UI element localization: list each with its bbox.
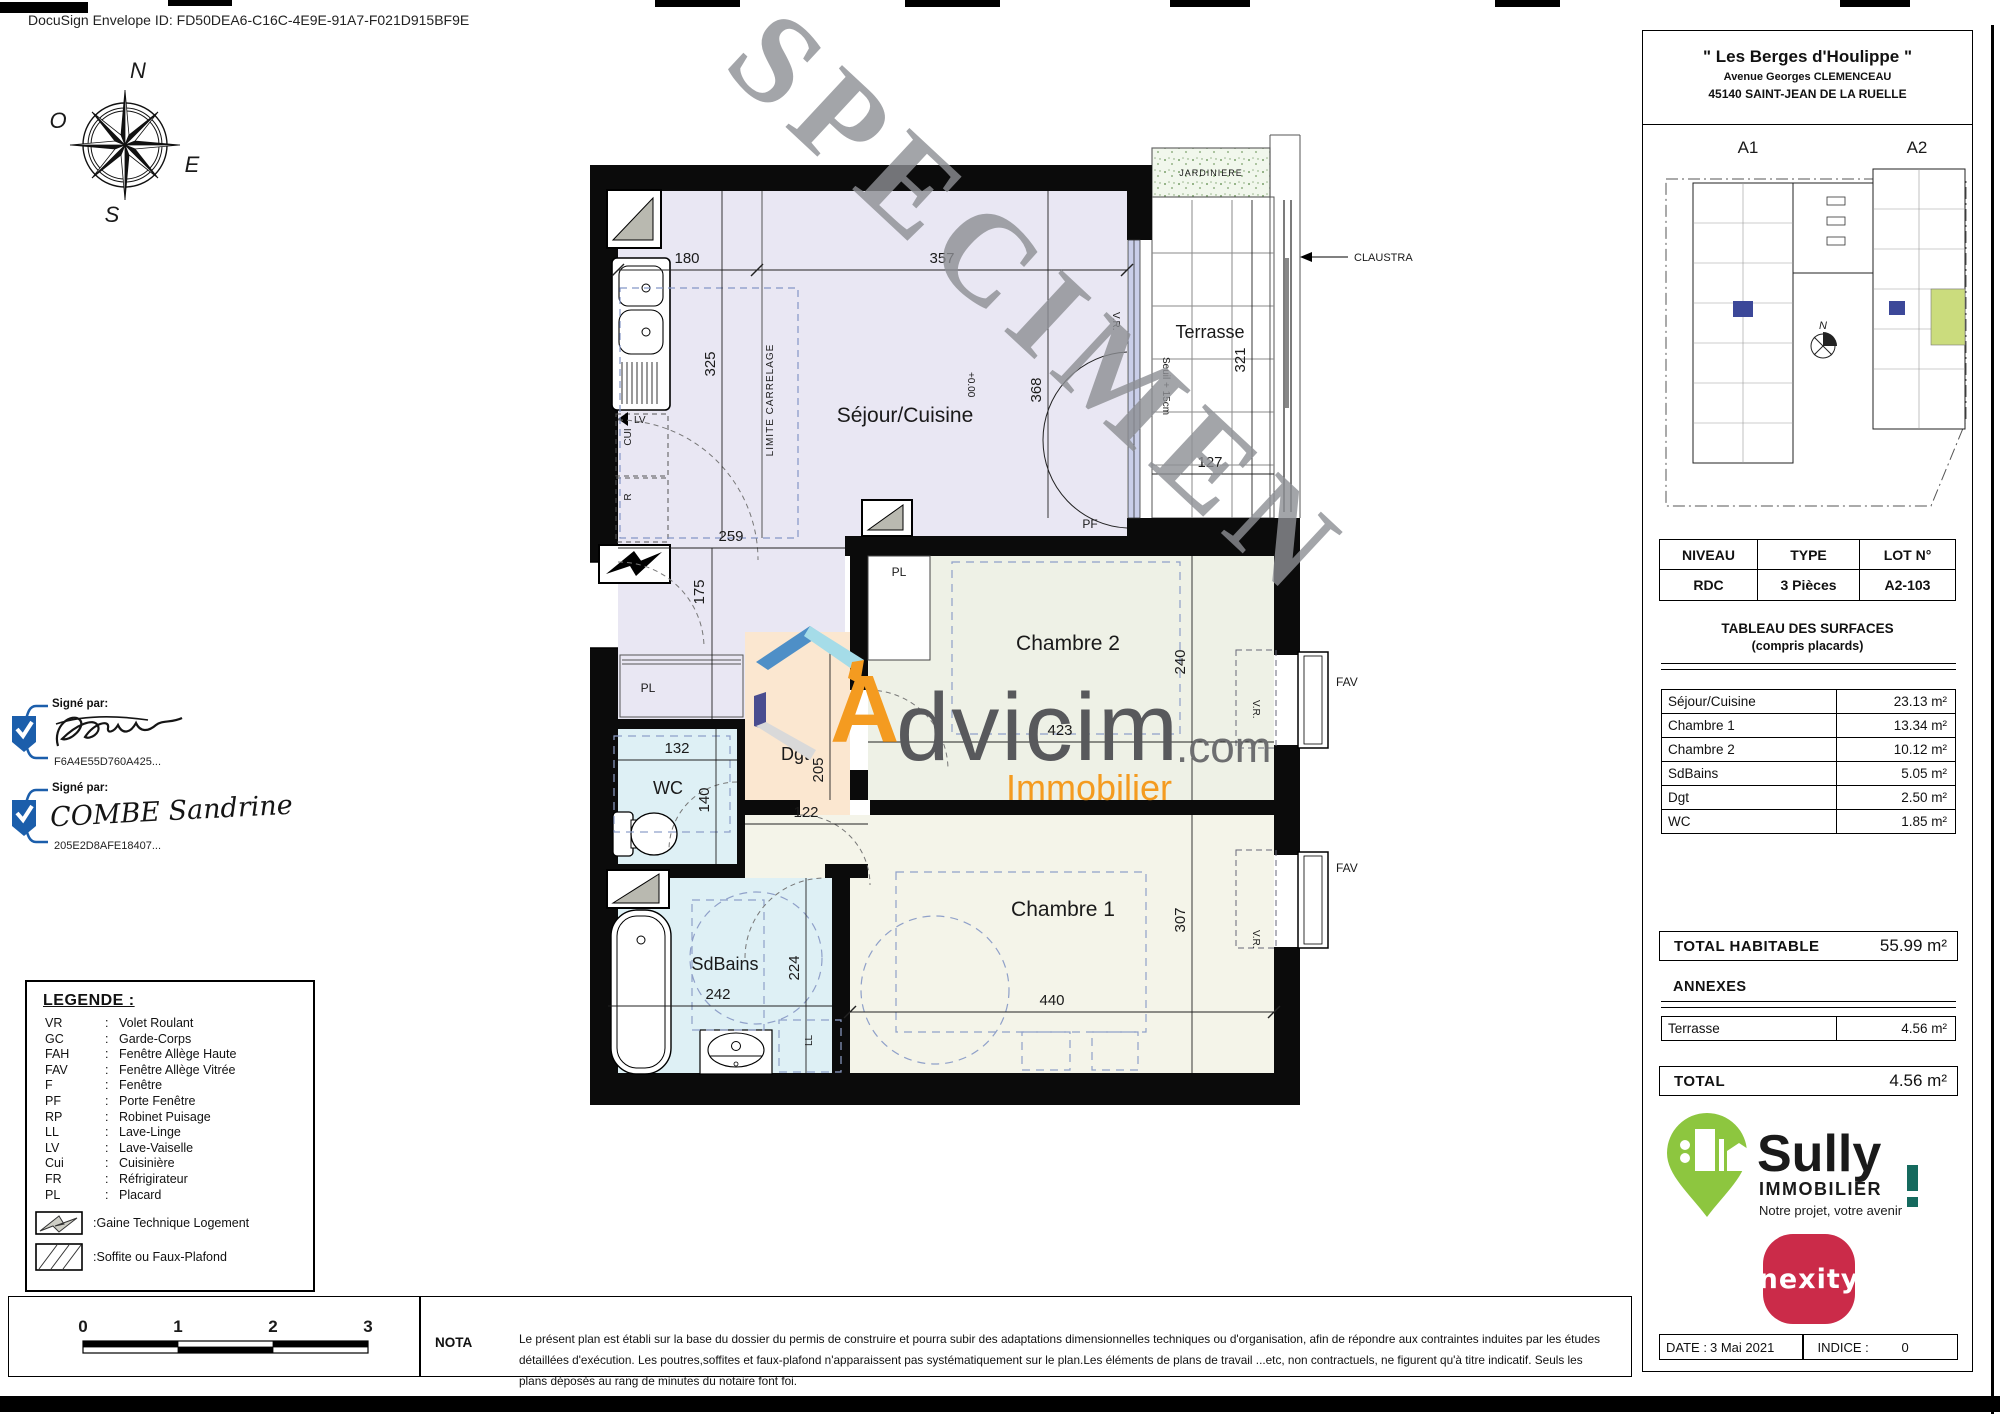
svg-text:PF: PF <box>1082 517 1097 531</box>
surface-row: Dgt2.50 m² <box>1662 786 1955 810</box>
legend-item: RP:Robinet Puisage <box>27 1110 313 1126</box>
svg-text:Seuil + 15cm: Seuil + 15cm <box>1160 357 1171 415</box>
svg-text:357: 357 <box>929 250 954 267</box>
total-habitable-box: TOTAL HABITABLE55.99 m² <box>1659 931 1958 961</box>
sully-name: Sully <box>1757 1125 1881 1183</box>
gtl-icon <box>35 1211 83 1235</box>
surfaces-subtitle: (compris placards) <box>1643 639 1972 653</box>
svg-text:325: 325 <box>702 351 719 376</box>
svg-text:FAV: FAV <box>1336 861 1358 875</box>
svg-text:368: 368 <box>1028 377 1045 402</box>
surfaces-title: TABLEAU DES SURFACES <box>1643 621 1972 636</box>
legend-item: GC:Garde-Corps <box>27 1032 313 1048</box>
legend-item: FAV:Fenêtre Allège Vitrée <box>27 1063 313 1079</box>
page-bottom-bar <box>0 1396 2000 1412</box>
surface-row: Chambre 210.12 m² <box>1662 738 1955 762</box>
surface-row: WC1.85 m² <box>1662 810 1955 833</box>
advicim-name: dvicim <box>896 680 1180 776</box>
svg-text:V.R.: V.R. <box>1250 930 1261 949</box>
kitchen-sink-unit <box>612 258 670 410</box>
svg-text:PL: PL <box>892 565 907 579</box>
signature-id: F6A4E55D760A425... <box>54 756 161 768</box>
legend-item: FR:Réfrigirateur <box>27 1172 313 1188</box>
signature-id: 205E2D8AFE18407... <box>54 840 161 852</box>
svg-text:+0.00: +0.00 <box>965 372 976 398</box>
signature-scribble <box>50 710 200 756</box>
claustra: CLAUSTRA <box>1284 200 1413 512</box>
label-wc: WC <box>653 778 683 798</box>
date-indice-row: DATE : 3 Mai 2021 INDICE : 0 <box>1659 1334 1958 1360</box>
bathtub-icon <box>611 910 671 1074</box>
svg-text:321: 321 <box>1232 347 1249 372</box>
legend-item: Cui:Cuisinière <box>27 1156 313 1172</box>
svg-text:3: 3 <box>363 1317 372 1336</box>
soffite-icon <box>35 1243 83 1271</box>
label-terrasse: Terrasse <box>1175 322 1244 342</box>
claustra-label: CLAUSTRA <box>1354 252 1413 264</box>
svg-text:1: 1 <box>173 1317 182 1336</box>
signature-block-2: Signé par: COMBE Sandrine 205E2D8AFE1840… <box>10 782 240 872</box>
legend-item: F:Fenêtre <box>27 1078 313 1094</box>
level-type-lot-table: NIVEAUTYPELOT N° RDC3 PiècesA2-103 <box>1659 539 1956 601</box>
svg-text:FAV: FAV <box>1336 675 1358 689</box>
surfaces-table: Séjour/Cuisine23.13 m² Chambre 113.34 m²… <box>1661 689 1956 834</box>
site-compass-icon: N <box>1811 320 1837 358</box>
legend-item: LL:Lave-Linge <box>27 1125 313 1141</box>
svg-text:140: 140 <box>696 787 713 812</box>
total-box: TOTAL4.56 m² <box>1659 1066 1958 1096</box>
jardiniere-label: JARDINIERE <box>1179 168 1243 178</box>
surface-row: Chambre 113.34 m² <box>1662 714 1955 738</box>
signature-block-1: Signé par: F6A4E55D760A425... <box>10 698 240 788</box>
svg-text:132: 132 <box>664 740 689 757</box>
signed-by-label: Signé par: <box>52 782 108 794</box>
double-rule <box>1661 663 1956 670</box>
legend-item: PF:Porte Fenêtre <box>27 1094 313 1110</box>
scale-bar: 0 1 2 3 <box>78 1317 372 1353</box>
annexes-label: ANNEXES <box>1673 979 1747 995</box>
advicim-initial: A <box>830 662 899 758</box>
svg-text:LV: LV <box>634 415 646 426</box>
label-sejour: Séjour/Cuisine <box>837 404 974 427</box>
site-key-plan: A1 A2 N <box>1643 131 1974 526</box>
page-right-edge <box>1991 25 1994 1414</box>
svg-text:CUI: CUI <box>623 428 634 445</box>
surface-row: Séjour/Cuisine23.13 m² <box>1662 690 1955 714</box>
compass-e: E <box>185 152 200 177</box>
legend-gtl-row: :Gaine Technique Logement <box>27 1211 313 1235</box>
svg-text:440: 440 <box>1039 992 1064 1009</box>
legend-item: FAH:Fenêtre Allège Haute <box>27 1047 313 1063</box>
svg-text:R: R <box>623 493 634 500</box>
legend-title: LEGENDE : <box>43 992 313 1010</box>
compass-s: S <box>105 202 120 227</box>
compass-o: O <box>49 108 66 133</box>
label-chambre1: Chambre 1 <box>1011 898 1115 921</box>
closet-entry <box>620 655 743 717</box>
svg-text:259: 259 <box>718 528 743 545</box>
svg-text:PL: PL <box>641 681 656 695</box>
svg-text:LIMITE CARRELAGE: LIMITE CARRELAGE <box>765 344 776 457</box>
signed-by-label: Signé par: <box>52 698 108 710</box>
svg-text:180: 180 <box>674 250 699 267</box>
advicim-tagline: Immobilier <box>1006 770 1172 806</box>
svg-text:V.R.: V.R. <box>1110 312 1121 331</box>
svg-text:242: 242 <box>705 986 730 1003</box>
site-a1-label: A1 <box>1738 138 1759 157</box>
compass-n: N <box>130 58 146 83</box>
sully-sub: IMMOBILIER <box>1759 1179 1882 1199</box>
title-block-panel: " Les Berges d'Houlippe " Avenue Georges… <box>1642 30 1973 1372</box>
svg-text:224: 224 <box>786 955 803 980</box>
project-address-1: Avenue Georges CLEMENCEAU <box>1643 71 1972 83</box>
annexe-row: Terrasse4.56 m² <box>1662 1017 1955 1040</box>
annexes-table: Terrasse4.56 m² <box>1661 1016 1956 1041</box>
svg-text:307: 307 <box>1172 907 1189 932</box>
project-address-2: 45140 SAINT-JEAN DE LA RUELLE <box>1643 87 1972 101</box>
sully-tagline: Notre projet, votre avenir <box>1759 1203 1903 1218</box>
floor-plan-sheet: N O E S JARDINIERE <box>0 0 2000 1414</box>
docusign-envelope-id: DocuSign Envelope ID: FD50DEA6-C16C-4E9E… <box>28 12 469 28</box>
surface-row: SdBains5.05 m² <box>1662 762 1955 786</box>
legend-soffite-row: :Soffite ou Faux-Plafond <box>27 1243 313 1271</box>
advicim-tld: .com <box>1176 726 1271 770</box>
washbasin-icon <box>700 1030 772 1074</box>
legend-item: VR:Volet Roulant <box>27 1016 313 1032</box>
svg-text:0: 0 <box>78 1317 87 1336</box>
legend-box: LEGENDE : VR:Volet Roulant GC:Garde-Corp… <box>25 980 315 1292</box>
svg-text:127: 127 <box>1197 454 1222 471</box>
site-highlighted-unit <box>1931 289 1965 345</box>
toilet-icon <box>613 812 677 856</box>
legend-item: PL:Placard <box>27 1188 313 1204</box>
svg-text:2: 2 <box>268 1317 277 1336</box>
svg-text:LL: LL <box>804 1034 815 1046</box>
double-rule <box>1661 1001 1956 1008</box>
site-a2-label: A2 <box>1907 138 1928 157</box>
sully-logo: Sully IMMOBILIER Notre projet, votre ave… <box>1661 1113 1961 1223</box>
nexity-logo: nexity <box>1763 1234 1855 1324</box>
svg-text:175: 175 <box>691 579 708 604</box>
svg-text:N: N <box>1819 320 1827 332</box>
project-header: " Les Berges d'Houlippe " Avenue Georges… <box>1643 31 1972 125</box>
label-sdbains: SdBains <box>691 954 758 974</box>
window-vr-sejour <box>1128 240 1140 518</box>
compass-rose-icon: N O E S <box>49 58 199 227</box>
legend-item: LV:Lave-Vaiselle <box>27 1141 313 1157</box>
project-title: " Les Berges d'Houlippe " <box>1643 47 1972 67</box>
advicim-logo: A dvicim .com Immobilier <box>748 618 1308 818</box>
